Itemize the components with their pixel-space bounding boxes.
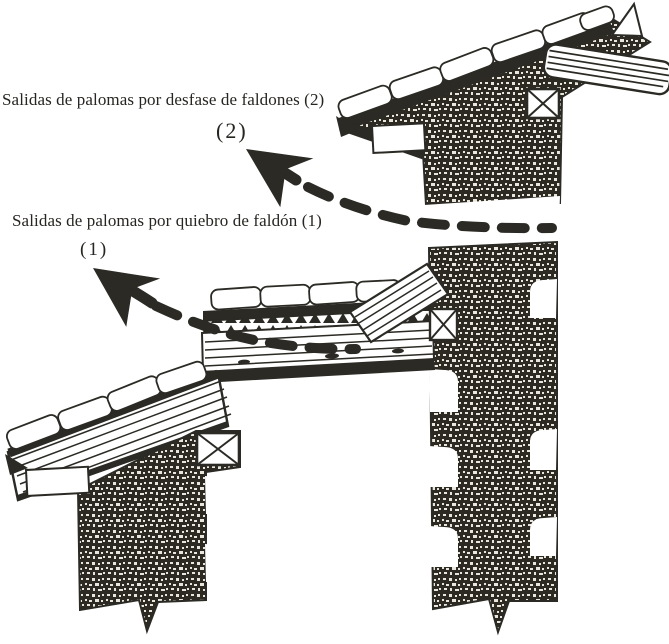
quiebro-tie-beam-xbox <box>430 309 457 340</box>
upper-roof <box>336 4 669 205</box>
arch-opening <box>530 279 557 318</box>
right-wall <box>429 242 557 632</box>
label-desfase-de-faldones: Salidas de palomas por desfase de faldon… <box>2 90 324 110</box>
label-quiebro-de-faldon: Salidas de palomas por quiebro de faldón… <box>12 211 322 231</box>
arch-opening <box>530 517 557 556</box>
upper-tie-beam-xbox <box>527 89 559 118</box>
lower-fascia-board <box>26 467 89 496</box>
arch-opening <box>429 369 458 412</box>
arch-opening <box>429 446 458 487</box>
lower-tie-beam-xbox <box>197 433 239 465</box>
quiebro-assembly <box>201 264 457 383</box>
arch-opening <box>530 429 557 470</box>
marker-1: (1) <box>80 239 108 261</box>
arch-opening <box>205 476 232 514</box>
arch-opening <box>205 544 232 582</box>
figure-canvas: Salidas de palomas por desfase de faldon… <box>0 0 669 644</box>
ridge-spike <box>612 4 642 36</box>
marker-2: (2) <box>216 118 248 144</box>
upper-fascia-board <box>372 123 425 153</box>
lower-left-wall-arches <box>205 476 232 582</box>
arch-opening <box>429 526 458 567</box>
